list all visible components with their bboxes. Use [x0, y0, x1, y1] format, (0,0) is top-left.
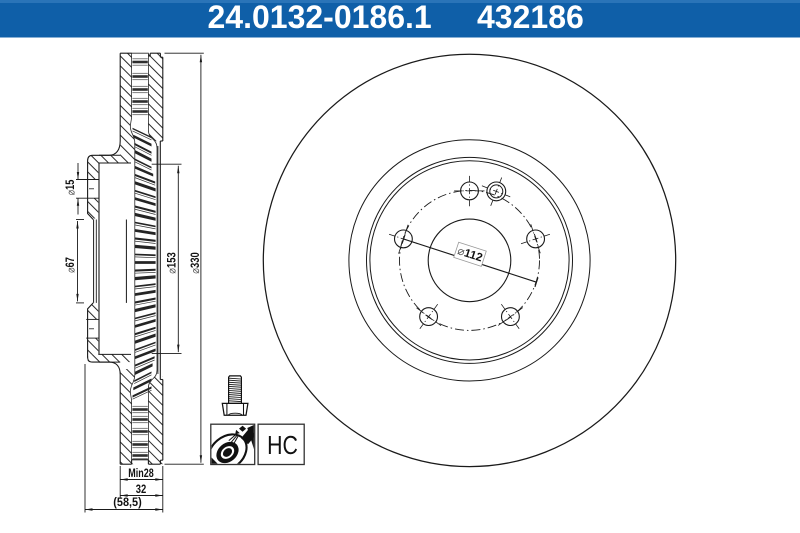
svg-text:24.0132-0186.1: 24.0132-0186.1 — [208, 0, 432, 35]
svg-text:HC: HC — [267, 431, 298, 461]
svg-text:Min28: Min28 — [128, 468, 154, 480]
svg-text:(58,5): (58,5) — [113, 497, 142, 509]
svg-text:⌀330: ⌀330 — [189, 252, 202, 274]
svg-text:432186: 432186 — [477, 0, 584, 35]
svg-text:32: 32 — [136, 483, 147, 496]
svg-text:⌀67: ⌀67 — [65, 257, 77, 273]
svg-text:⌀15: ⌀15 — [65, 179, 77, 195]
svg-text:⌀153: ⌀153 — [166, 252, 179, 274]
